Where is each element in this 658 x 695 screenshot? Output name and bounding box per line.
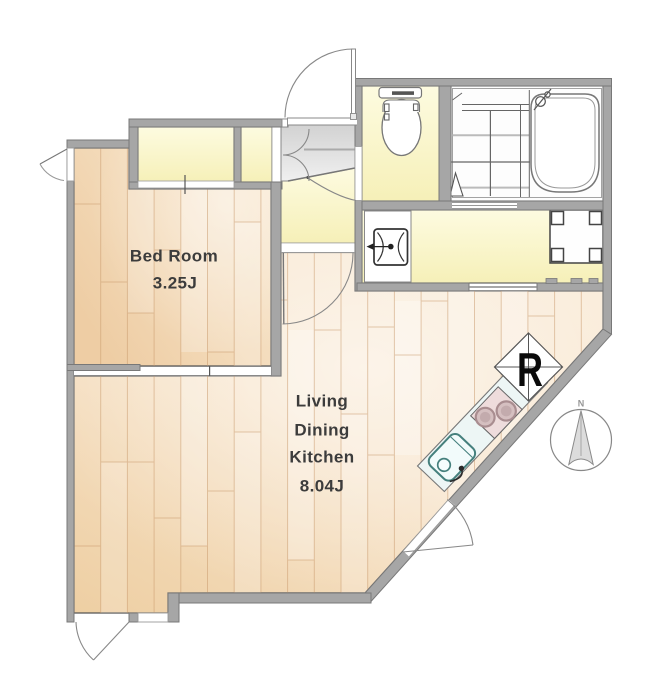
svg-text:8.04J: 8.04J <box>300 477 345 496</box>
svg-text:Living: Living <box>296 392 348 411</box>
svg-text:R: R <box>517 343 543 396</box>
svg-text:Bed Room: Bed Room <box>130 247 218 266</box>
svg-text:Dining: Dining <box>294 421 349 440</box>
svg-text:Kitchen: Kitchen <box>289 448 354 467</box>
svg-text:N: N <box>578 399 585 409</box>
svg-text:3.25J: 3.25J <box>153 274 198 293</box>
